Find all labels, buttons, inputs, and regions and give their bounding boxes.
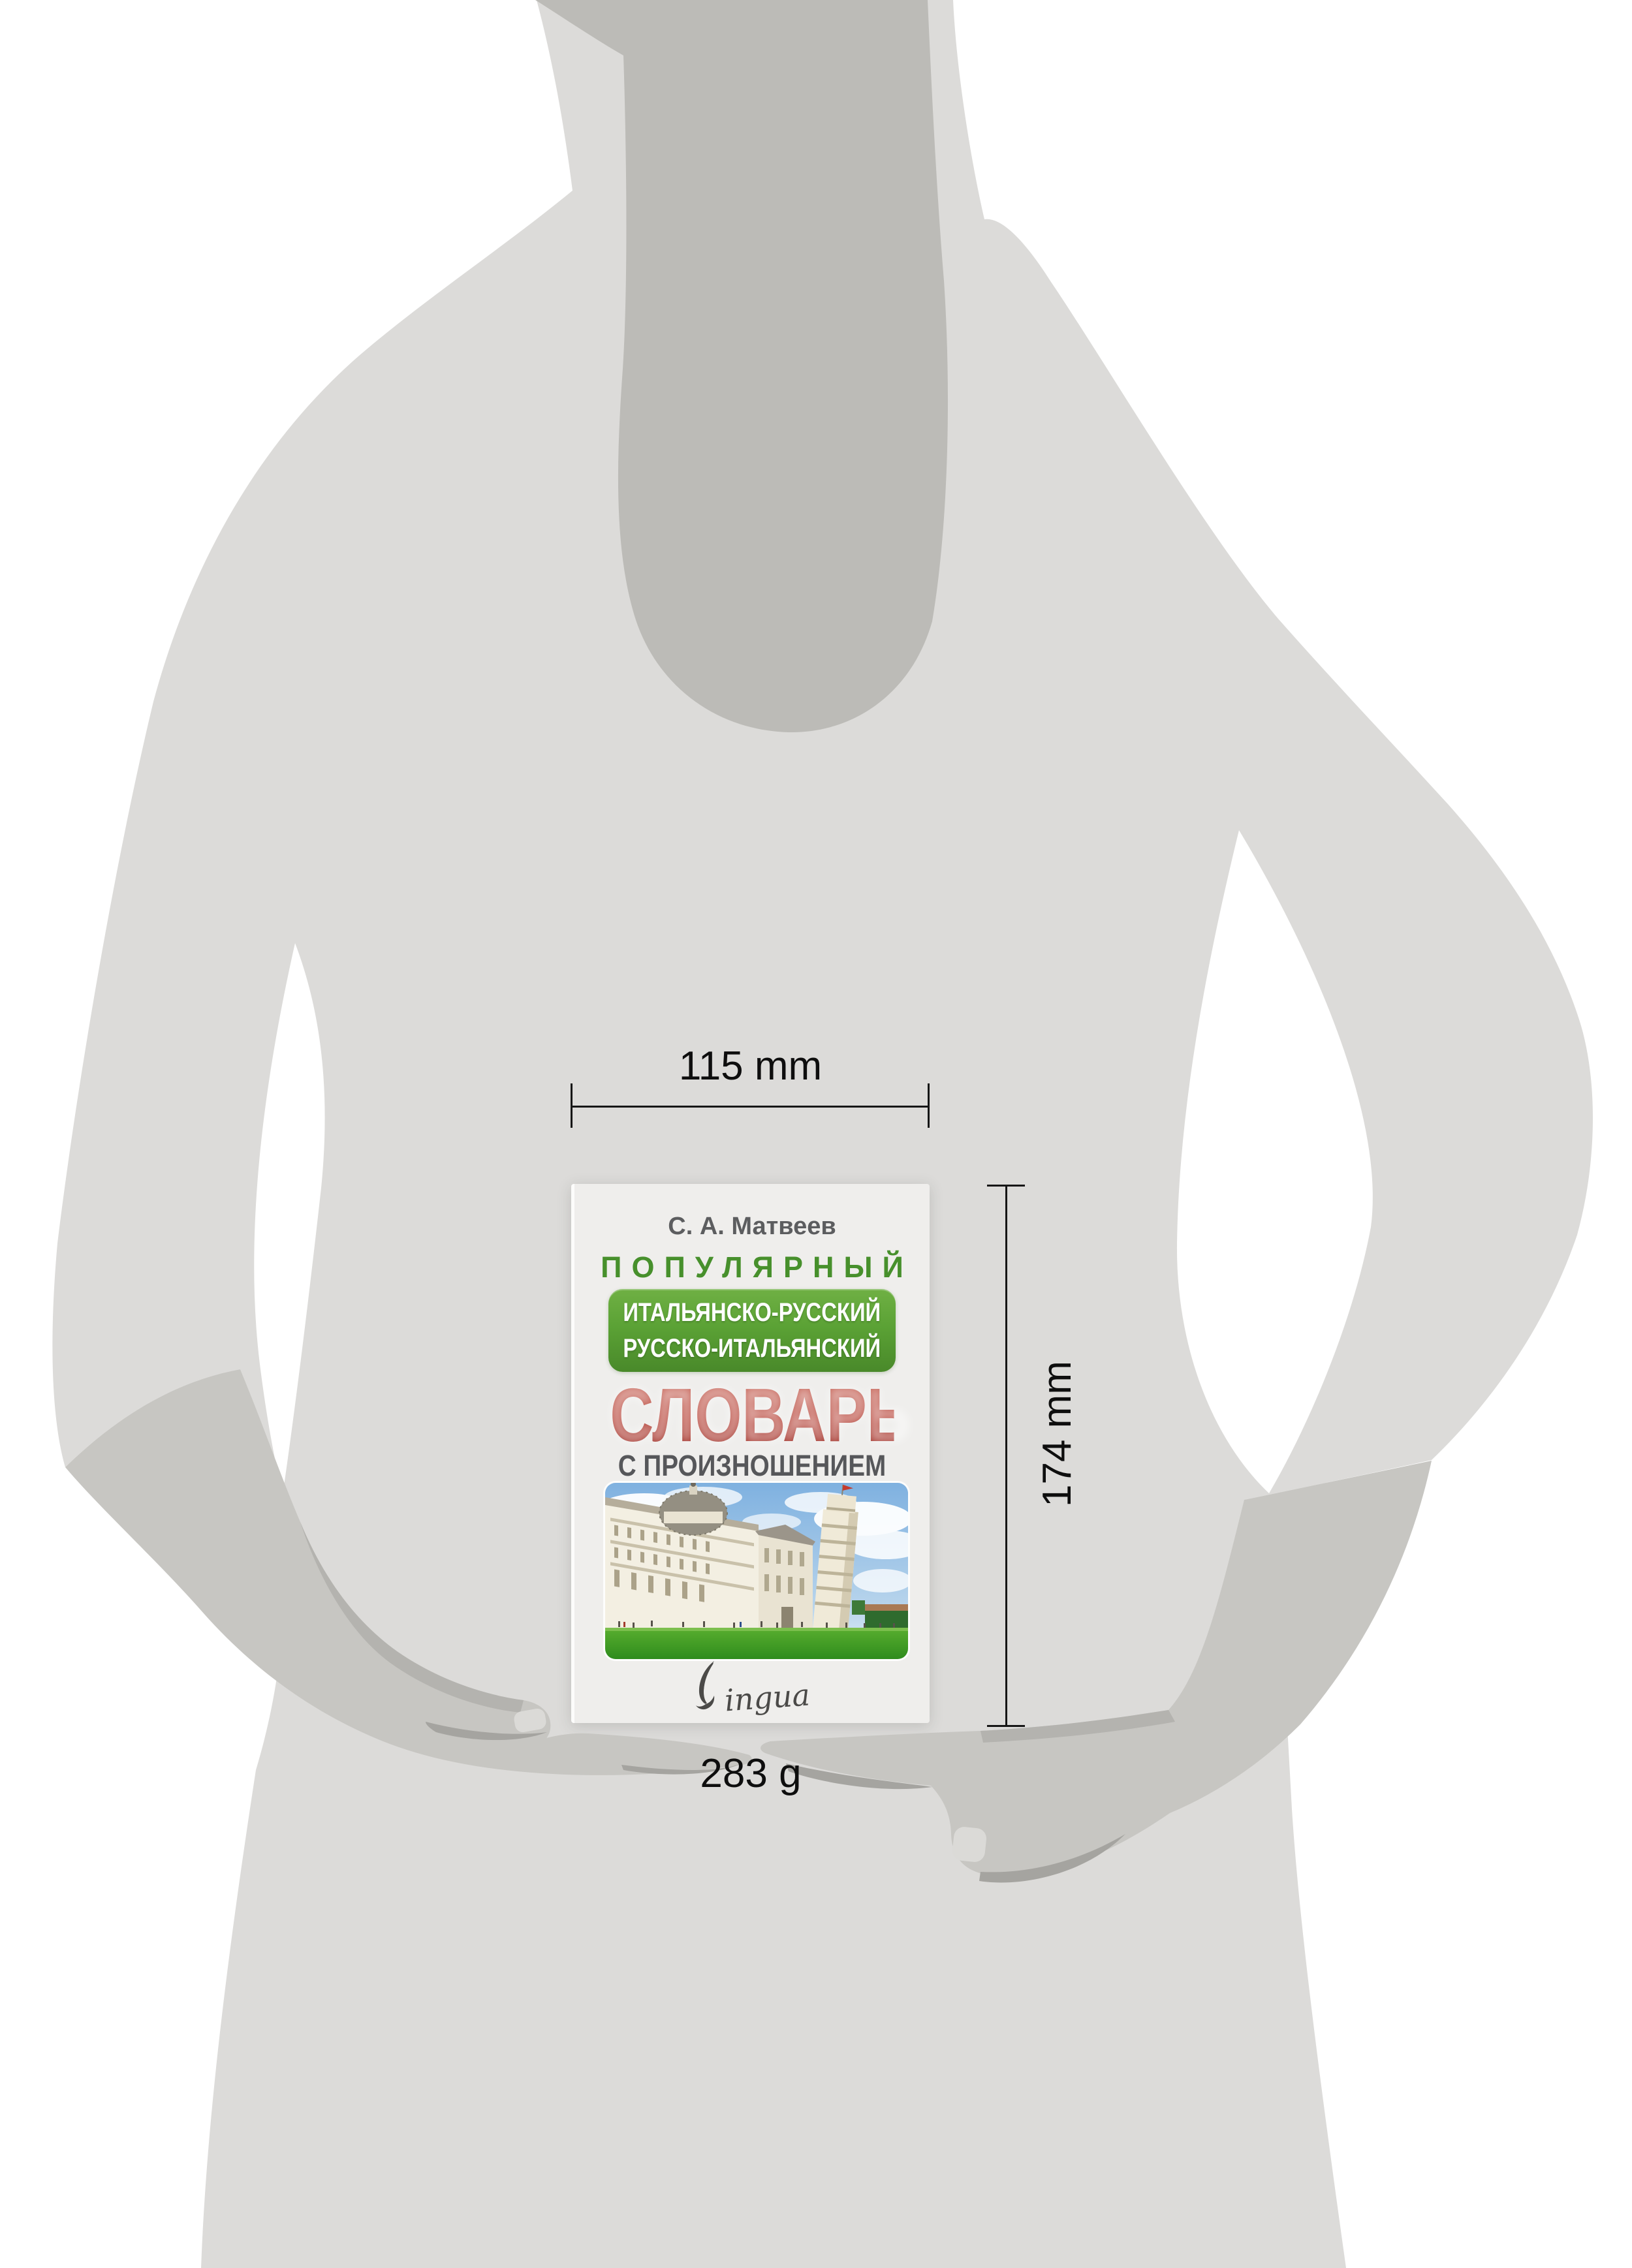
width-dimension-tick-left [571, 1083, 573, 1128]
height-dimension-label: 174 mm [1036, 1336, 1079, 1532]
height-dimension-tick-bottom [987, 1725, 1025, 1727]
product-dimensions-screenshot: С. А. Матвеев ПОПУЛЯРНЫЙ ИТАЛЬЯНСКО-РУСС… [0, 0, 1632, 2268]
right-thumbnail [951, 1826, 987, 1863]
height-dimension-line [1005, 1185, 1007, 1726]
weight-label: 283 g [636, 1750, 865, 1797]
width-dimension-line [571, 1106, 930, 1108]
right-forearm-hand [761, 1461, 1432, 1876]
left-forearm-hand [65, 1369, 752, 1775]
hands-overlay [0, 0, 1632, 2268]
width-dimension-label: 115 mm [571, 1043, 930, 1089]
width-dimension-tick-right [928, 1083, 930, 1128]
height-dimension-tick-top [987, 1185, 1025, 1187]
